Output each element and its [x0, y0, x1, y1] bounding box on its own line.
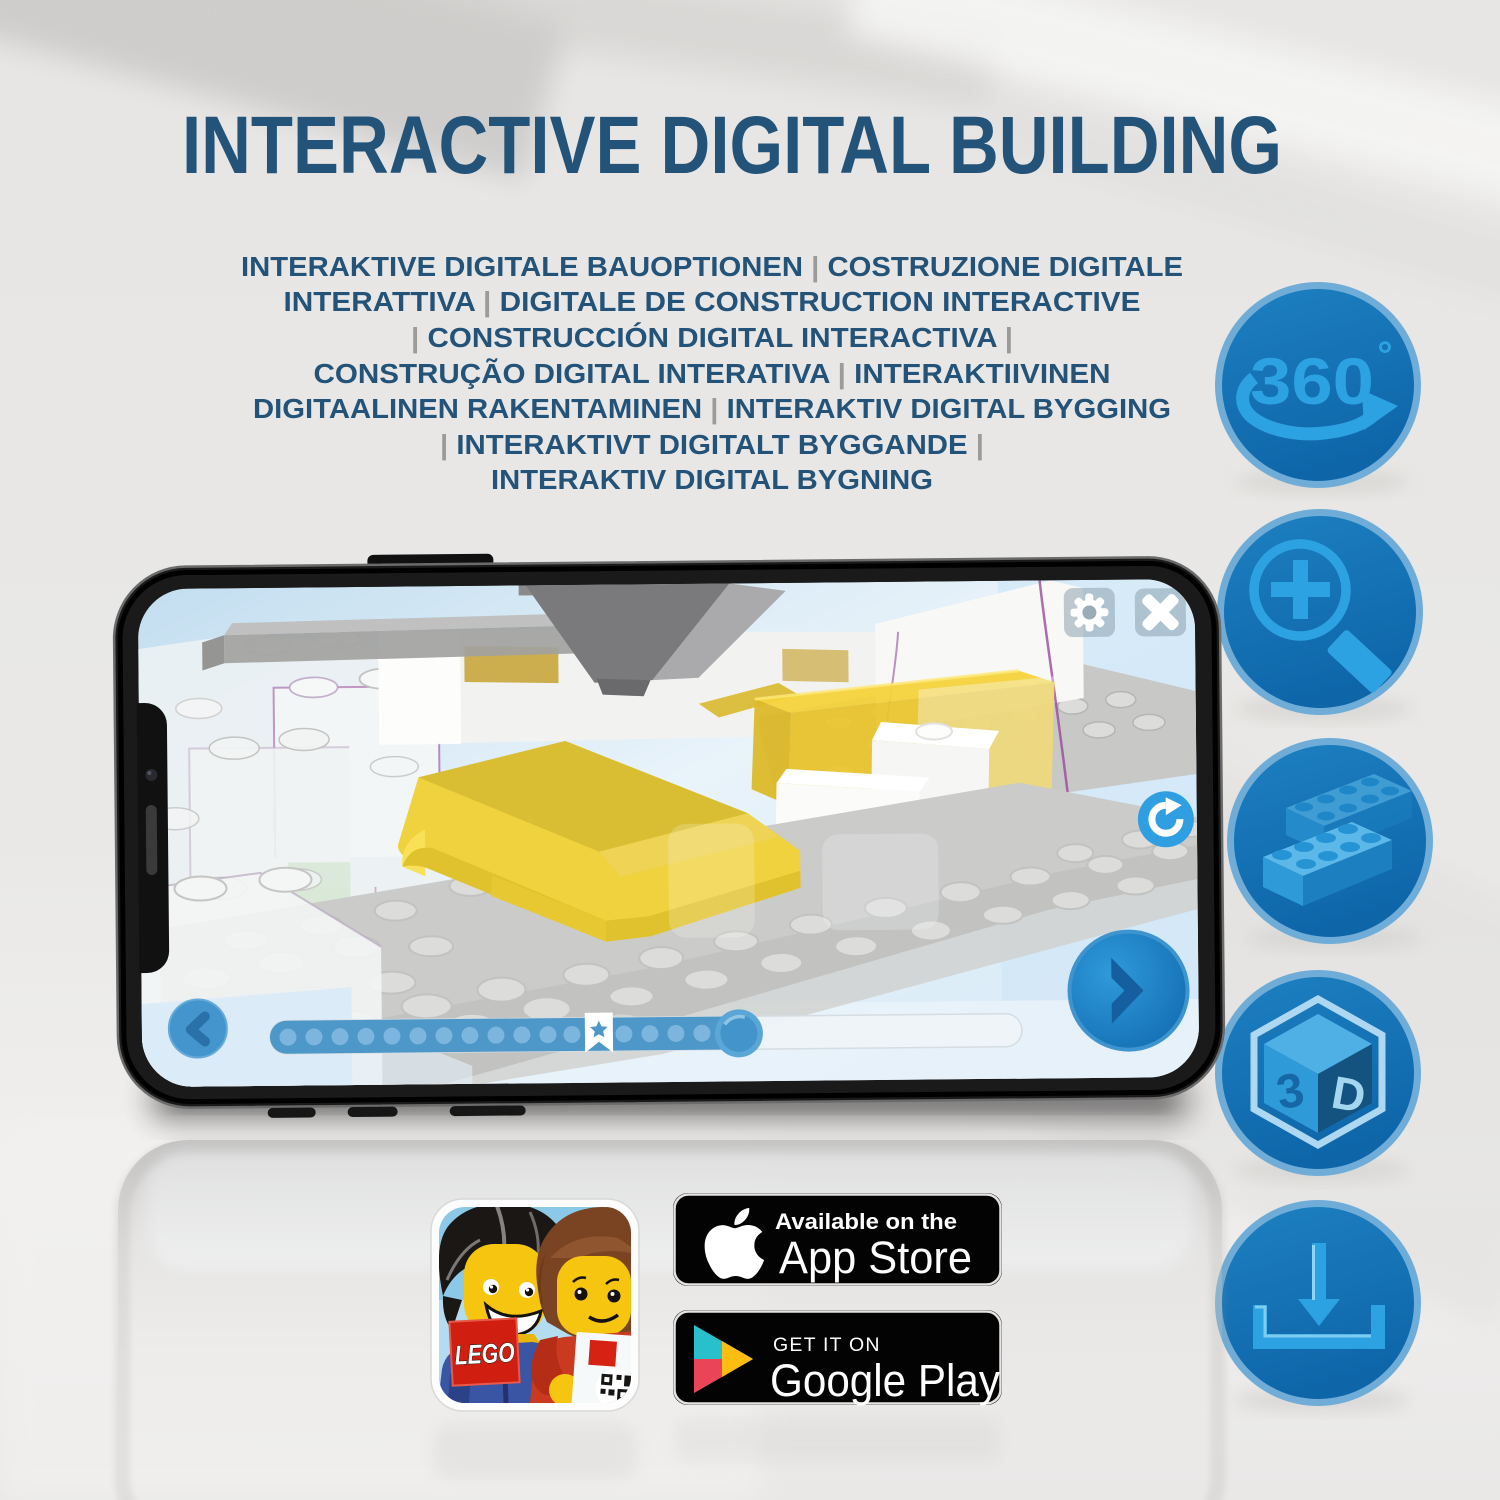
- svg-text:| INTERAKTIVT DIGITALT BYGGAND: | INTERAKTIVT DIGITALT BYGGANDE |: [440, 429, 984, 460]
- svg-text:Available on the: Available on the: [775, 1209, 957, 1234]
- svg-text:INTERAKTIV DIGITAL BYGNING: INTERAKTIV DIGITAL BYGNING: [491, 464, 933, 495]
- svg-text:| CONSTRUCCIÓN DIGITAL INTERAC: | CONSTRUCCIÓN DIGITAL INTERACTIVA |: [411, 322, 1013, 353]
- svg-text:DIGITAALINEN RAKENTAMINEN | IN: DIGITAALINEN RAKENTAMINEN | INTERAKTIV D…: [253, 393, 1171, 424]
- svg-text:INTERATTIVA | DIGITALE DE CONS: INTERATTIVA | DIGITALE DE CONSTRUCTION I…: [284, 286, 1141, 317]
- svg-text:App Store: App Store: [779, 1232, 972, 1283]
- svg-text:Google Play: Google Play: [770, 1355, 1000, 1406]
- svg-text:°: °: [1377, 335, 1392, 377]
- svg-text:360: 360: [1250, 344, 1374, 418]
- svg-text:CONSTRUÇÃO DIGITAL INTERATIVA: CONSTRUÇÃO DIGITAL INTERATIVA | INTERAKT…: [314, 358, 1111, 389]
- svg-text:GET IT ON: GET IT ON: [773, 1334, 881, 1356]
- svg-text:INTERAKTIVE DIGITALE BAUOPTION: INTERAKTIVE DIGITALE BAUOPTIONEN | COSTR…: [241, 251, 1183, 282]
- svg-text:INTERACTIVE DIGITAL BUILDING: INTERACTIVE DIGITAL BUILDING: [182, 100, 1282, 191]
- svg-text:LEGO: LEGO: [454, 1337, 515, 1370]
